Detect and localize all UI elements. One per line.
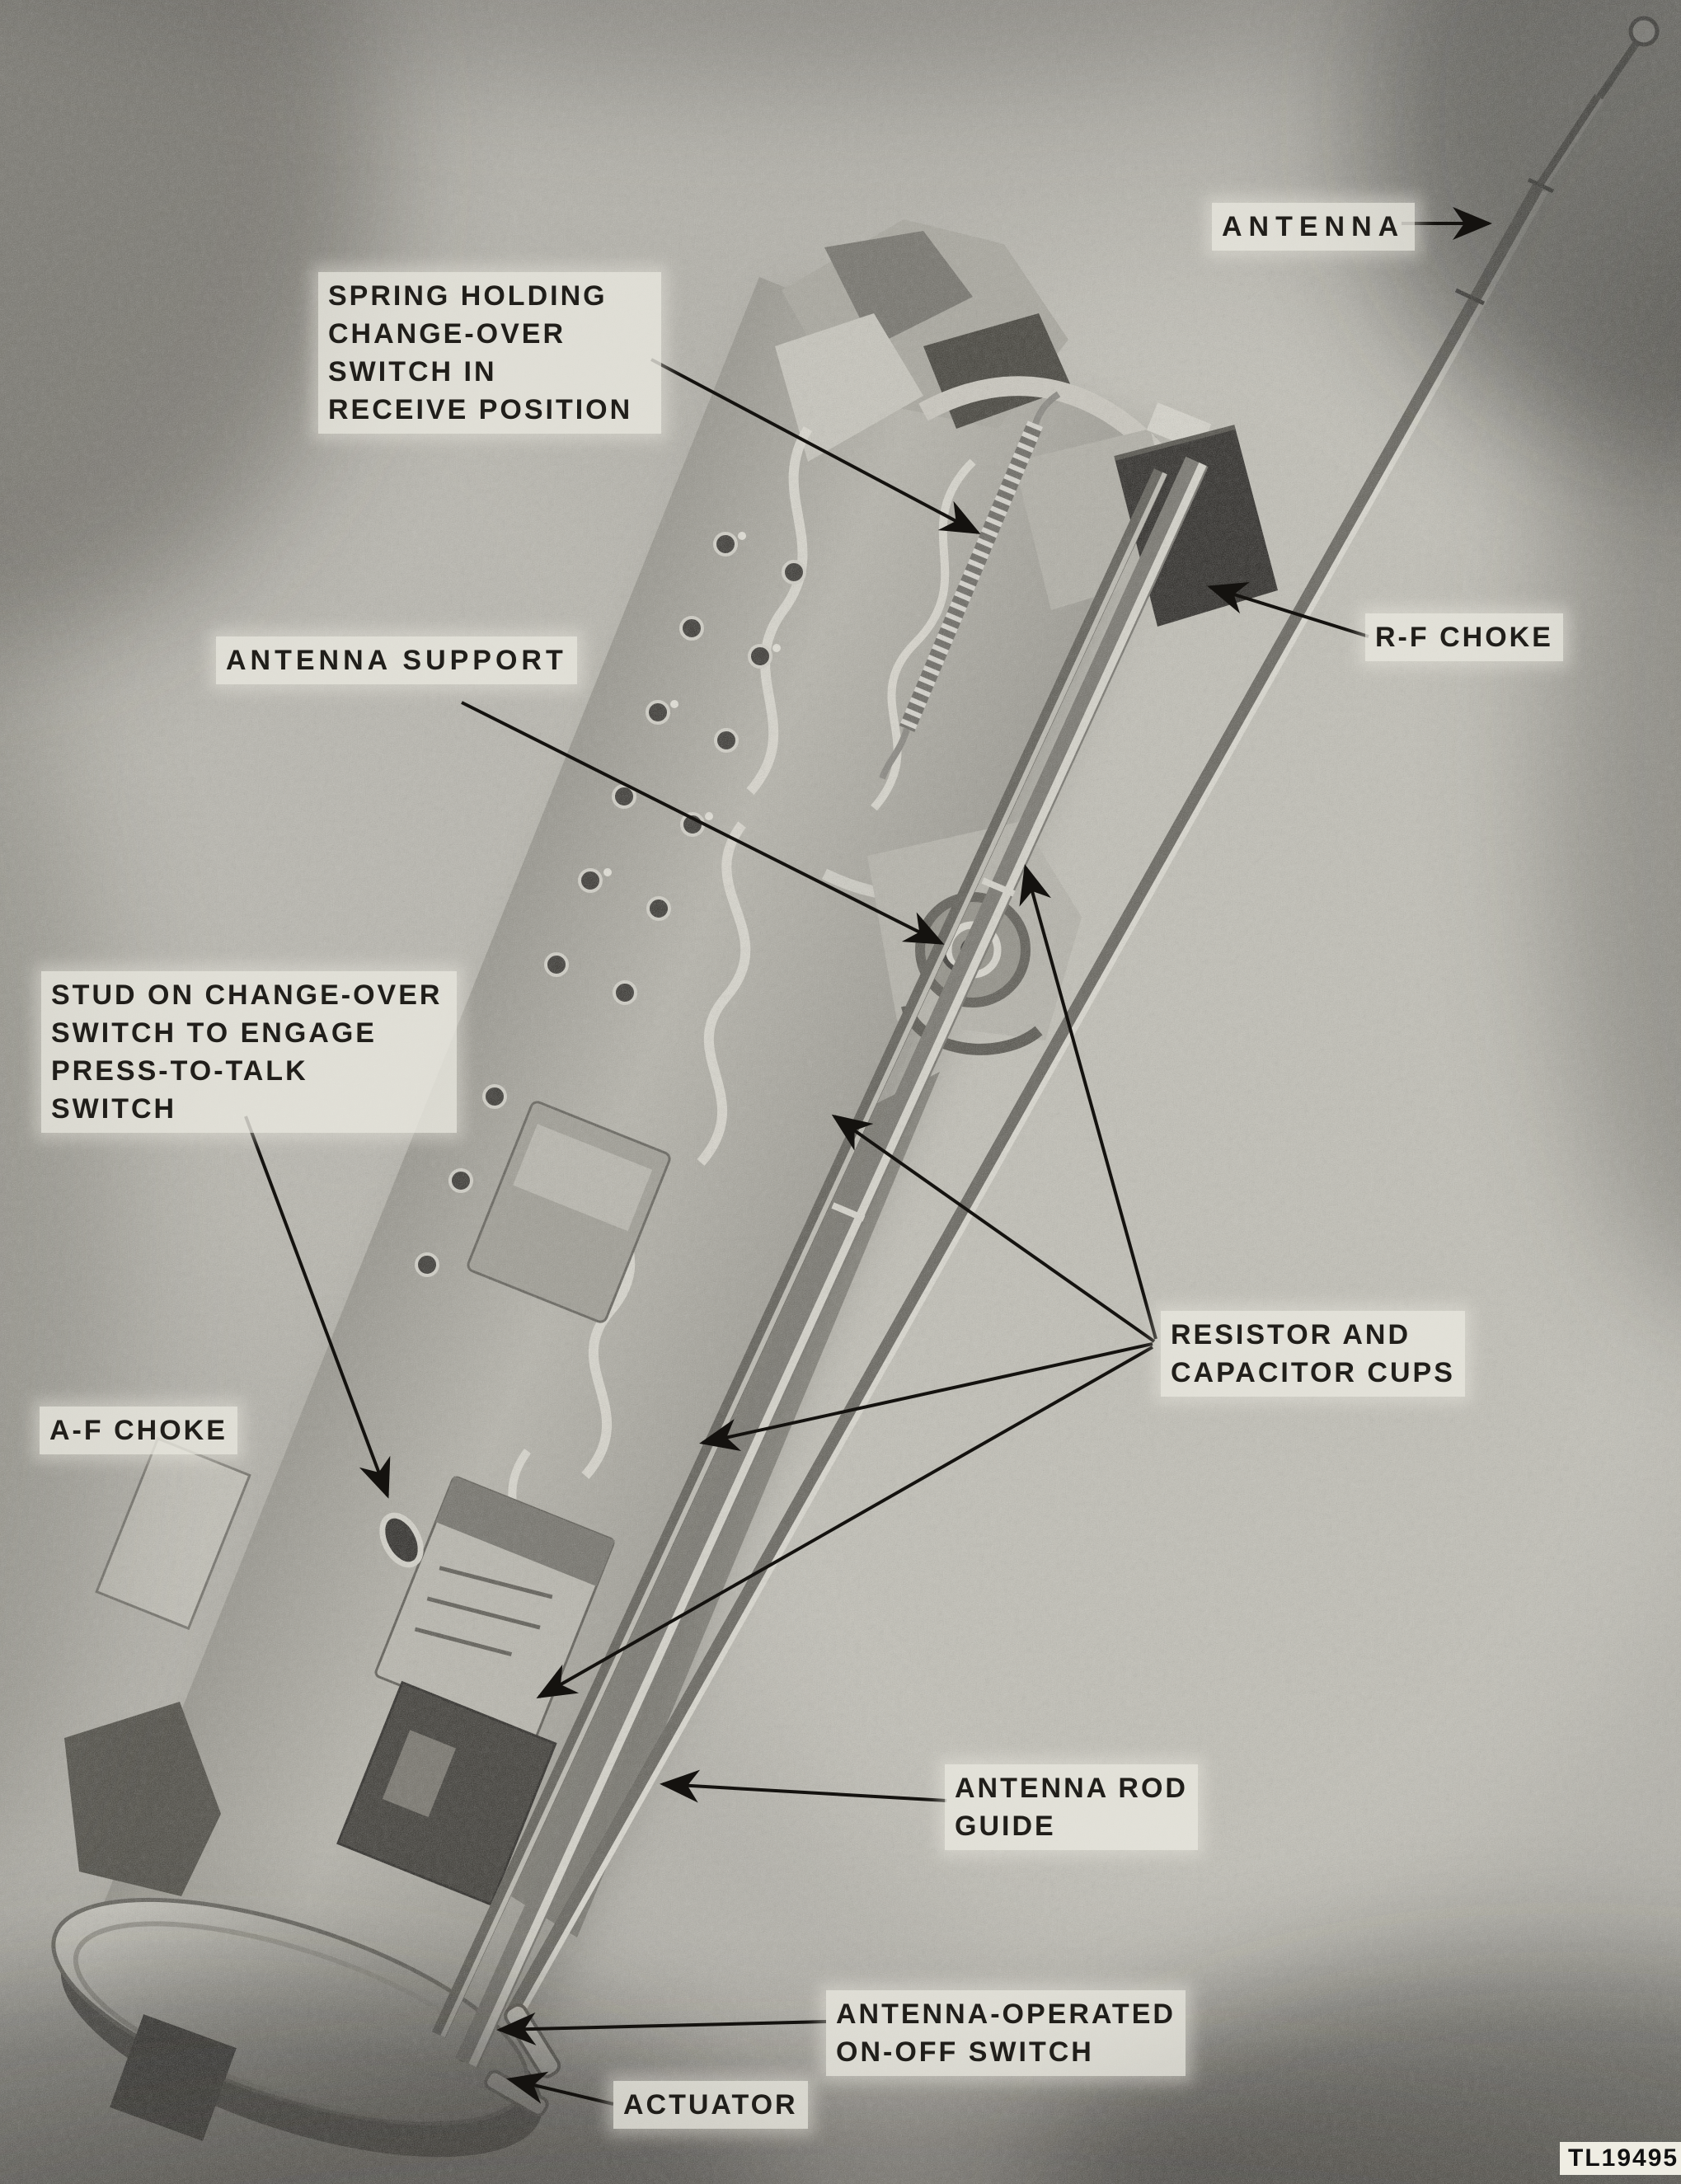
label-rf-choke: R-F CHOKE — [1365, 613, 1563, 661]
label-antenna-operated-on-off-switch: ANTENNA-OPERATED ON-OFF SWITCH — [826, 1990, 1186, 2076]
label-spring-holding-switch: SPRING HOLDING CHANGE-OVER SWITCH IN REC… — [318, 272, 661, 434]
label-antenna-support: ANTENNA SUPPORT — [216, 636, 577, 684]
label-actuator: ACTUATOR — [613, 2081, 808, 2129]
label-stud-change-over-switch: STUD ON CHANGE-OVER SWITCH TO ENGAGE PRE… — [41, 971, 457, 1133]
label-antenna-rod-guide: ANTENNA ROD GUIDE — [945, 1764, 1198, 1850]
figure-number: TL19495 — [1560, 2142, 1681, 2175]
label-antenna: ANTENNA — [1212, 203, 1415, 251]
label-resistor-capacitor-cups: RESISTOR AND CAPACITOR CUPS — [1161, 1311, 1465, 1397]
label-af-choke: A-F CHOKE — [40, 1407, 237, 1454]
manual-figure-page: ANTENNA SPRING HOLDING CHANGE-OVER SWITC… — [0, 0, 1681, 2184]
